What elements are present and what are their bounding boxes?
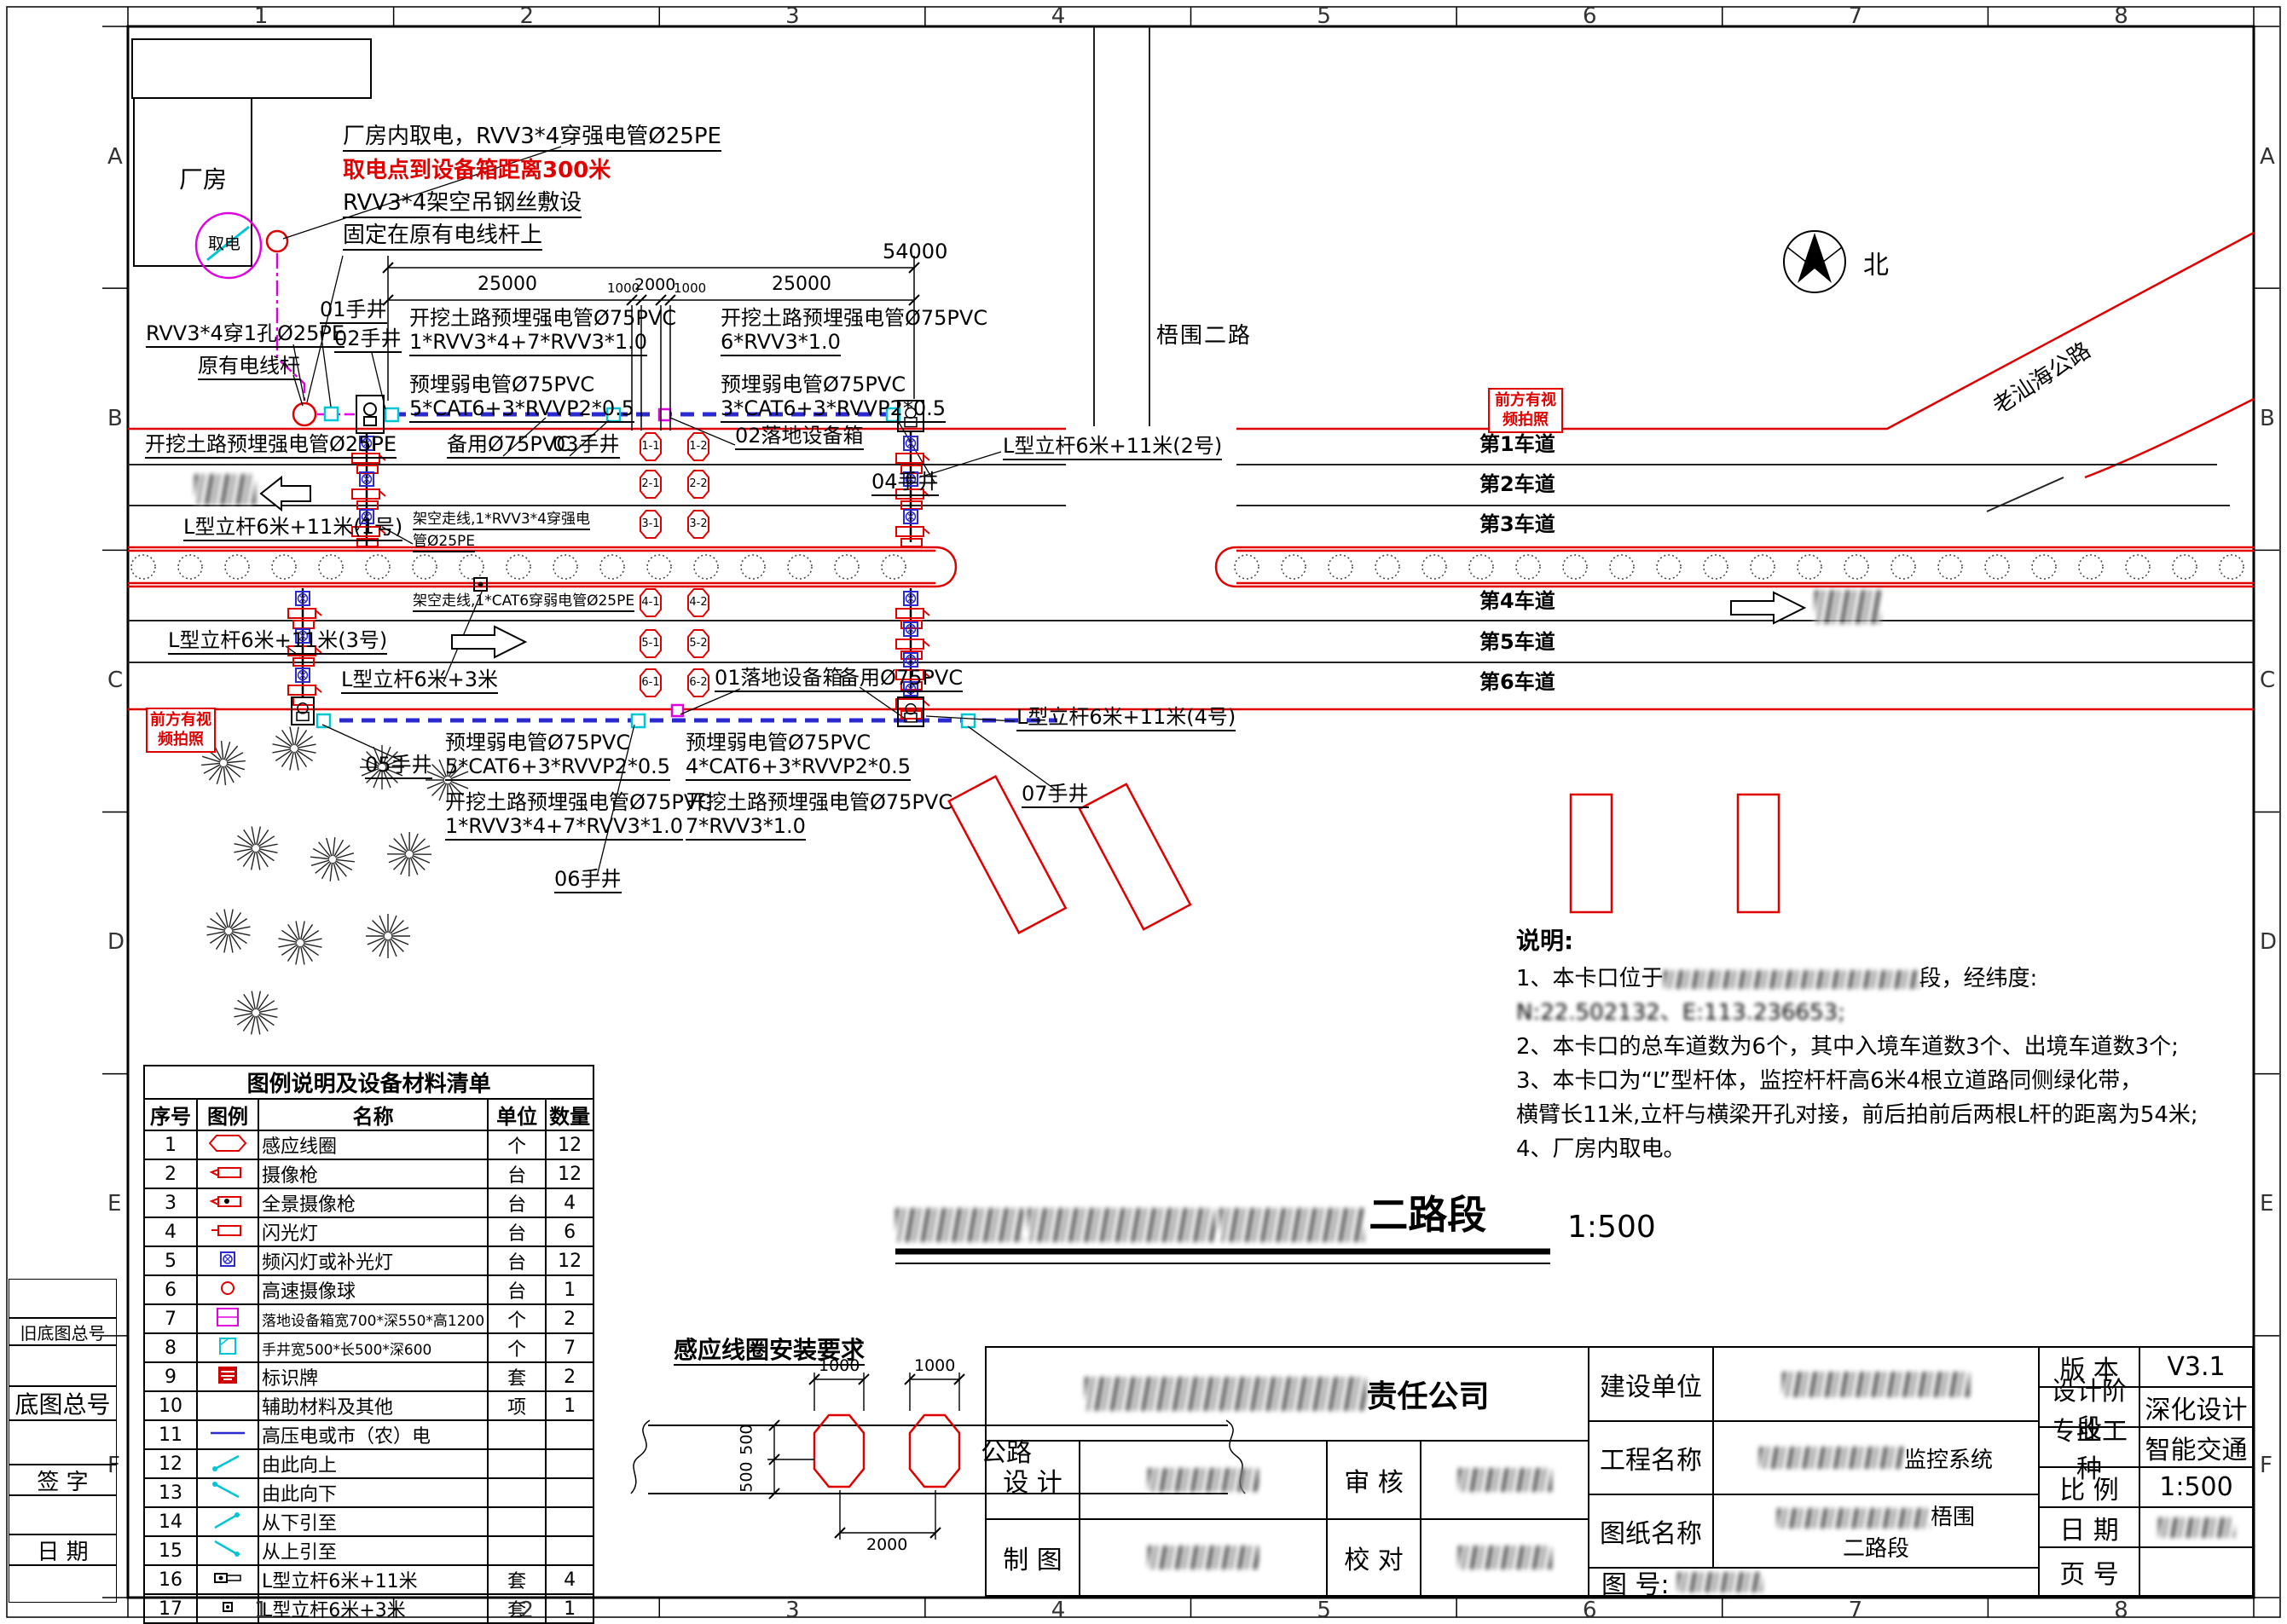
dim-seg-4: 1000 [674,281,706,296]
zone-col-top-8: 8 [2114,3,2128,29]
factory-yard-outline [132,39,371,98]
pole-4-label: L型立杆6米+11米(4号) [1016,706,1236,731]
north-arrow-icon [1784,231,1845,292]
number-row: 图 号: [1588,1567,2040,1597]
handwell-05-label: 05手井 [365,754,432,779]
date-label: 日 期 [2038,1506,2140,1548]
legend-header-2: 名称 [258,1099,488,1130]
legend-header-4: 数量 [546,1099,593,1130]
dim-total: 54000 [883,240,947,263]
legend-row-6: 6高速摄像球台1 [144,1275,593,1304]
conduit-tl2a: 预埋弱电管Ø75PVC [409,373,594,396]
ann-tap1: 厂房内取电，RVV3*4穿强电管Ø25PE [343,124,721,152]
company-suffix: 责任公司 [1366,1372,1489,1416]
zone-row-right-A: A [2260,144,2275,170]
page-value [2139,1546,2254,1597]
lane-label-1: 第1车道 [1479,433,1555,456]
aerial-strong-1: 架空走线,1*RVV3*4穿强电 [413,511,590,530]
margin-empty-2 [9,1345,117,1386]
dim-seg-5: 25000 [772,275,831,296]
review-value [1420,1440,1589,1520]
zone-col-top-2: 2 [519,3,534,29]
coil-4-1: 4-1 [639,596,663,609]
legend-row-4: 4闪光灯台6 [144,1217,593,1246]
owner-value [1712,1346,2040,1422]
zone-row-right-E: E [2260,1191,2273,1217]
detail-dim-1000b: 1000 [914,1357,955,1375]
dig-strong-25-label: 开挖土路预埋强电管Ø25PE [145,433,397,459]
check-label: 校 对 [1326,1518,1421,1597]
note-line-6: 4、厂房内取电。 [1516,1132,2267,1166]
legend-header-0: 序号 [144,1099,197,1130]
lane-label-6: 第6车道 [1479,671,1555,694]
zone-row-right-F: F [2260,1453,2273,1478]
lane-label-4: 第4车道 [1479,590,1555,613]
direction-arrows [261,477,1804,657]
lane-label-3: 第3车道 [1479,513,1555,536]
notes-title: 说明: [1516,928,1573,954]
company-cell: 责任公司 [985,1346,1589,1442]
coil-5-2: 5-2 [686,637,710,650]
note-line-3: 2、本卡口的总车道数为6个，其中入境车道数3个、出境车道数3个; [1516,1030,2267,1064]
zone-col-top-5: 5 [1317,3,1331,29]
handwell-06-label: 06手井 [554,868,622,893]
zone-col-bottom-4: 4 [1051,1598,1066,1623]
conduit-br1a: 预埋弱电管Ø75PVC [686,731,871,754]
legend-row-8: 8手井宽500*长500*深600个7 [144,1333,593,1362]
handwell-01-label: 01手井 [320,298,387,324]
scale-label: 比 例 [2038,1466,2140,1508]
legend-header-3: 单位 [488,1099,546,1130]
cross-road-label: 梧围二路 [1156,324,1252,349]
note-line-4: 3、本卡口为“L”型杆体，监控杆杆高6米4根立道路同侧绿化带， [1516,1064,2267,1098]
cabinet-02-label: 02落地设备箱 [735,425,864,450]
note-line-1: 1、本卡口位于段，经纬度: [1516,962,2267,996]
legend-row-15: 15从上引至 [144,1536,593,1565]
trade-value: 智能交通 [2139,1426,2254,1468]
legend-row-10: 10辅助材料及其他项1 [144,1391,593,1420]
cabinet-01-label: 01落地设备箱 [715,667,843,692]
main-title-scale: 1:500 [1567,1211,1656,1245]
owner-label: 建设单位 [1588,1346,1714,1422]
note-line-5: 横臂长11米,立杆与横梁开孔对接，前后拍前后两根L杆的距离为54米; [1516,1098,2267,1132]
camera-sign-2: 前方有视 频拍照 [146,708,216,753]
zone-col-bottom-5: 5 [1317,1598,1331,1623]
spare-pvc-bottom-label: 备用Ø75PVC [839,667,963,692]
coil-3-2: 3-2 [686,517,710,530]
stage-value: 深化设计 [2139,1386,2254,1428]
zone-col-bottom-2: 2 [519,1598,534,1623]
zone-row-right-B: B [2260,406,2275,431]
zone-row-left-D: D [107,929,124,955]
date-value [2139,1506,2254,1548]
legend-row-3: 3全景摄像枪台4 [144,1188,593,1217]
zone-row-left-B: B [107,406,123,431]
coil-1-1: 1-1 [639,440,663,453]
legend-row-11: 11高压电或市（农）电 [144,1420,593,1449]
trade-label: 专业工种 [2038,1426,2140,1468]
main-title-visible: 二路段 [1369,1192,1486,1238]
conduit-tl1a: 开挖土路预埋强电管Ø75PVC [409,307,676,330]
pole-short-label: L型立杆6米+3米 [341,668,498,694]
drawing-label: 图纸名称 [1588,1494,1714,1569]
conduit-tr1a: 开挖土路预埋强电管Ø75PVC [721,307,987,330]
conduit-br2b: 7*RVV3*1.0 [686,815,806,841]
erased-text-2 [1815,590,1881,624]
legend-table: 图例说明及设备材料清单 序号图例名称单位数量 1感应线圈个122摄像枪台123全… [143,1065,594,1624]
zone-row-right-D: D [2260,929,2277,955]
zone-col-top-3: 3 [785,3,800,29]
legend-row-12: 12由此向上 [144,1449,593,1478]
zone-row-left-A: A [107,144,123,170]
coil-3-1: 3-1 [639,517,663,530]
dim-seg-1: 25000 [478,275,537,296]
zone-col-bottom-8: 8 [2114,1598,2128,1623]
zone-row-left-C: C [107,668,123,693]
main-title: 二路段 [895,1193,1486,1242]
margin-empty-4 [9,1420,117,1465]
zone-col-top-7: 7 [1849,3,1863,29]
factory-label: 厂房 [179,166,227,193]
zone-col-bottom-3: 3 [785,1598,800,1623]
legend-header-row: 序号图例名称单位数量 [144,1099,593,1130]
legend-row-7: 7落地设备箱宽700*深550*高1200个2 [144,1304,593,1333]
coil-6-1: 6-1 [639,676,663,689]
conduit-bl2a: 开挖土路预埋强电管Ø75PVC [445,791,712,814]
pole-3-label: L型立杆6米+11米(3号) [168,629,387,655]
pole-1-label: L型立杆6米+11米(1号) [183,516,402,541]
margin-label-底图总号: 底图总号 [9,1386,117,1420]
coil-5-1: 5-1 [639,637,663,650]
notes-block: 1、本卡口位于段，经纬度:N:22.502132、E:113.236653;2、… [1516,962,2267,1166]
rvv-hole-label: RVV3*4穿1孔Ø25PE [146,322,344,348]
zone-col-bottom-7: 7 [1849,1598,1863,1623]
camera-sign-1: 前方有视 频拍照 [1488,388,1563,433]
coil-2-1: 2-1 [639,477,663,490]
review-label: 审 核 [1326,1440,1421,1520]
design-label: 设 计 [985,1440,1080,1520]
scale-value: 1:500 [2139,1466,2254,1508]
power-tap-label: 取电 [208,235,240,253]
ann-tap2-red: 取电点到设备箱距离300米 [343,159,611,183]
lane-label-5: 第5车道 [1479,631,1555,654]
draft-value [1079,1518,1328,1597]
drawing-value: 梧围 二路段 [1712,1494,2040,1569]
zone-row-right-C: C [2260,668,2275,693]
conduit-tl1b: 1*RVV3*4+7*RVV3*1.0 [409,331,647,356]
project-value: 监控系统 [1712,1420,2040,1495]
zone-col-bottom-6: 6 [1583,1598,1597,1623]
zone-row-left-E: E [107,1191,121,1217]
legend-row-14: 14从下引至 [144,1507,593,1536]
old-pole-label: 原有电线杆 [198,355,300,380]
conduit-br1b: 4*CAT6+3*RVVP2*0.5 [686,755,911,781]
conduit-br2a: 开挖土路预埋强电管Ø75PVC [686,791,952,814]
detail-dim-2000: 2000 [866,1536,907,1554]
zone-col-top-6: 6 [1583,3,1597,29]
detail-dim-1000a: 1000 [819,1357,860,1375]
dim-seg-3: 2000 [634,276,675,294]
aerial-weak: 架空走线,1*CAT6穿弱电管Ø25PE [413,593,634,612]
erased-text-1 [194,474,256,505]
margin-empty-8 [9,1565,117,1603]
margin-label-签 字: 签 字 [9,1465,117,1495]
lane-label-2: 第2车道 [1479,473,1555,496]
handwell-02-label: 02手井 [334,327,402,353]
conduit-tr1b: 6*RVV3*1.0 [721,331,841,356]
legend-row-16: 16L型立杆6米+11米套4 [144,1565,593,1594]
version-value: V3.1 [2139,1346,2254,1388]
coil-4-2: 4-2 [686,596,710,609]
ann-tap3: RVV3*4架空吊钢丝敷设 [343,191,582,218]
conduit-tr2b: 3*CAT6+3*RVVP2*0.5 [721,397,946,423]
handwell-03-label: 03手井 [553,433,620,459]
coil-2-2: 2-2 [686,477,710,490]
legend-header-1: 图例 [197,1099,258,1130]
pole-2-label: L型立杆6米+11米(2号) [1003,435,1222,460]
detail-dim-500b: 500 [738,1462,756,1493]
draft-label: 制 图 [985,1518,1080,1597]
conduit-tl2b: 5*CAT6+3*RVVP2*0.5 [409,397,634,423]
check-value [1420,1518,1589,1597]
zone-col-top-1: 1 [254,3,269,29]
north-label: 北 [1863,251,1889,280]
conduit-tr2a: 预埋弱电管Ø75PVC [721,373,906,396]
conduit-bl2b: 1*RVV3*4+7*RVV3*1.0 [445,815,683,841]
coil-1-2: 1-2 [686,440,710,453]
cabinet-02-symbol [356,396,384,433]
conduit-bl1a: 预埋弱电管Ø75PVC [445,731,630,754]
cad-sheet: 厂房 取电 厂房内取电，RVV3*4穿强电管Ø25PE 取电点到设备箱距离300… [0,0,2287,1624]
margin-empty-6 [9,1495,117,1534]
margin-label-日 期: 日 期 [9,1534,117,1565]
conduit-bl1b: 5*CAT6+3*RVVP2*0.5 [445,755,670,781]
note-line-2: N:22.502132、E:113.236653; [1516,996,2267,1030]
legend-row-2: 2摄像枪台12 [144,1159,593,1188]
legend-row-13: 13由此向下 [144,1478,593,1507]
zone-col-top-4: 4 [1051,3,1066,29]
legend-row-1: 1感应线圈个12 [144,1130,593,1159]
handwell-07-label: 07手井 [1022,783,1089,808]
margin-empty-0 [9,1279,117,1318]
ann-tap4: 固定在原有电线杆上 [343,223,542,251]
legend-row-5: 5频闪灯或补光灯台12 [144,1246,593,1275]
detail-dim-500a: 500 [738,1425,756,1455]
legend-title: 图例说明及设备材料清单 [144,1066,593,1099]
project-label: 工程名称 [1588,1420,1714,1495]
margin-label-旧底图总号: 旧底图总号 [9,1318,117,1345]
design-value [1079,1440,1328,1520]
aerial-strong-2: 管Ø25PE [413,534,475,552]
coil-6-2: 6-2 [686,676,710,689]
handwell-04-label: 04手井 [871,471,939,496]
zone-col-bottom-1: 1 [254,1598,269,1623]
legend-row-9: 9标识牌套2 [144,1362,593,1391]
page-label: 页 号 [2038,1546,2140,1597]
